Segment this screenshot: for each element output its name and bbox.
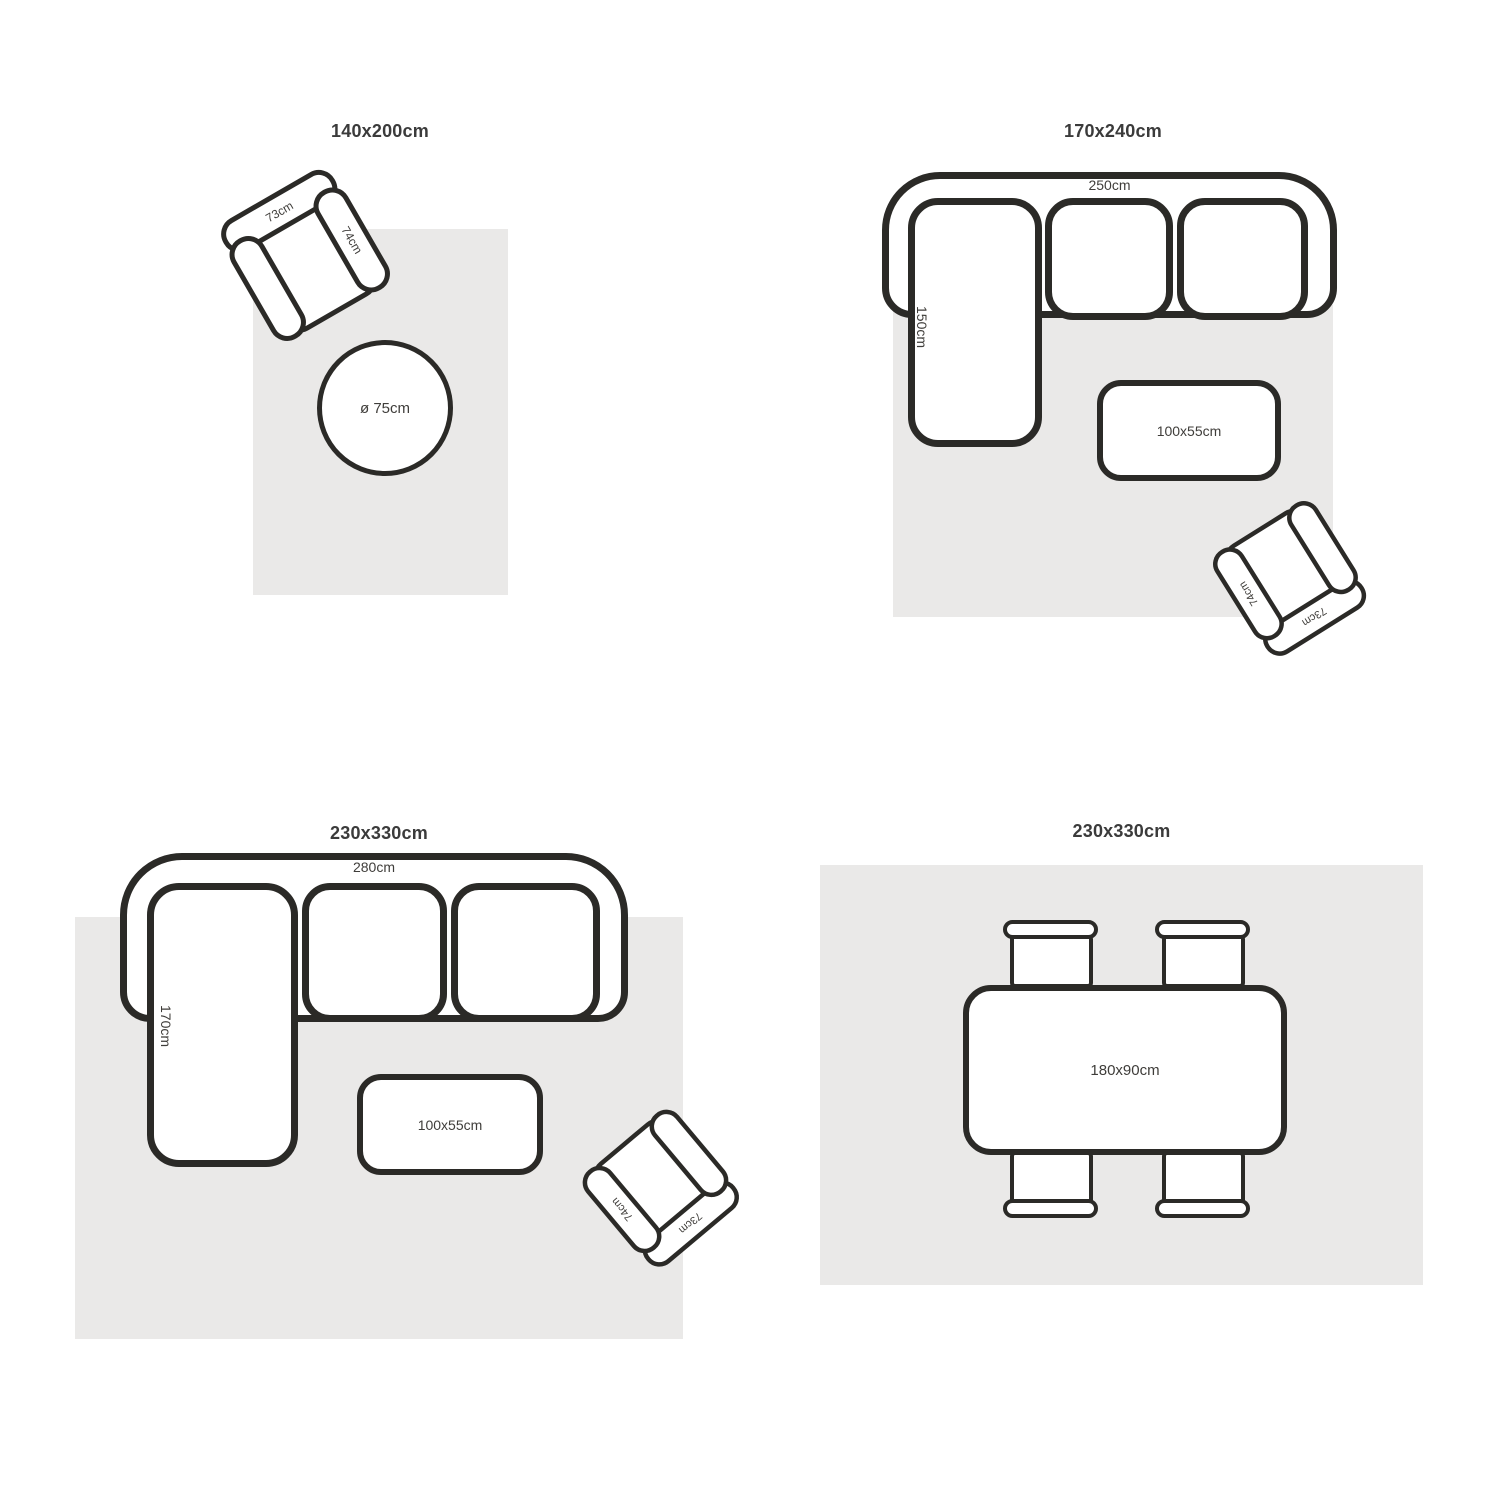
panel3-sofa-depth-label: 170cm	[158, 1005, 174, 1047]
dining-table-size-label: 180x90cm	[1090, 1062, 1159, 1079]
panel2-sofa-depth-label: 150cm	[914, 306, 930, 348]
armchair-arm-depth-label: 74cm	[609, 1195, 636, 1223]
dining-chair-backrest	[1155, 1199, 1250, 1218]
dining-chair-backrest	[1003, 920, 1098, 939]
armchair-back-width-label: 73cm	[263, 198, 295, 225]
armchair-arm-depth-label: 74cm	[338, 224, 365, 256]
panel1-round-side-table: ø 75cm	[317, 340, 453, 476]
armchair-back-width-label: 73cm	[1300, 605, 1329, 630]
coffee-table-size-label: 100x55cm	[1157, 423, 1222, 439]
dining-chair-backrest	[1155, 920, 1250, 939]
panel3-sofa-cushion	[451, 883, 600, 1022]
dining-chair-seat	[1010, 1151, 1093, 1205]
rug-size-guide: 140x200cm 73cm 74cm ø 75cm 170x240cm 250…	[0, 0, 1500, 1500]
panel2-sofa-cushion	[1045, 198, 1173, 320]
coffee-table-size-label: 100x55cm	[418, 1117, 483, 1133]
panel4-size-title: 230x330cm	[820, 821, 1423, 842]
dining-chair-seat	[1010, 934, 1093, 988]
panel2-sofa-cushion	[1177, 198, 1308, 320]
panel4-dining-table: 180x90cm	[963, 985, 1287, 1155]
panel1-size-title: 140x200cm	[193, 121, 567, 142]
panel3-sofa-width-label: 280cm	[120, 859, 628, 875]
panel3-sofa-cushion	[302, 883, 447, 1022]
panel2-coffee-table: 100x55cm	[1097, 380, 1281, 481]
panel3-coffee-table: 100x55cm	[357, 1074, 543, 1175]
dining-chair-seat	[1162, 1151, 1245, 1205]
panel2-size-title: 170x240cm	[893, 121, 1333, 142]
armchair-back-width-label: 73cm	[677, 1210, 705, 1237]
round-table-diameter-label: ø 75cm	[360, 400, 410, 417]
dining-chair-backrest	[1003, 1199, 1098, 1218]
panel3-size-title: 230x330cm	[75, 823, 683, 844]
dining-chair-seat	[1162, 934, 1245, 988]
armchair-arm-depth-label: 74cm	[1236, 579, 1261, 608]
panel2-sofa-width-label: 250cm	[882, 177, 1337, 193]
